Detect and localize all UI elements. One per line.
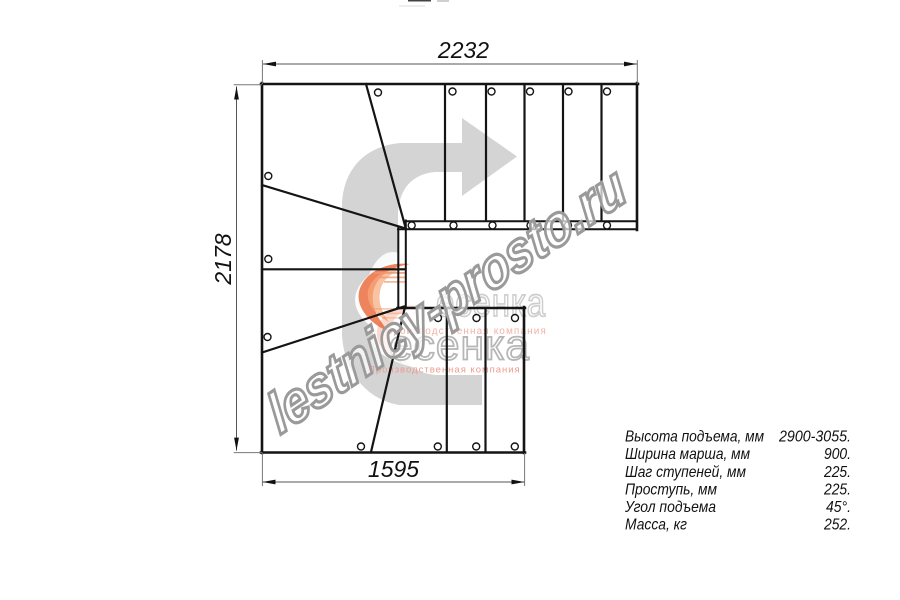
svg-text:Проступь, мм: Проступь, мм [625,481,717,498]
svg-text:Высота подъема, мм: Высота подъема, мм [625,429,764,446]
svg-text:2178: 2178 [210,233,236,285]
svg-text:Шаг ступеней, мм: Шаг ступеней, мм [625,464,746,481]
svg-text:1595: 1595 [368,456,419,482]
svg-text:Угол подъема: Угол подъема [624,499,716,516]
svg-text:45°.: 45°. [826,499,851,516]
svg-text:225.: 225. [823,481,851,498]
svg-text:900.: 900. [824,446,851,463]
svg-text:Масса, кг: Масса, кг [625,516,687,533]
svg-text:252.: 252. [823,516,851,533]
svg-text:Ширина марша, мм: Ширина марша, мм [625,446,750,463]
svg-text:2232: 2232 [437,37,489,63]
svg-text:225.: 225. [823,464,851,481]
svg-text:2900-3055.: 2900-3055. [778,429,851,446]
